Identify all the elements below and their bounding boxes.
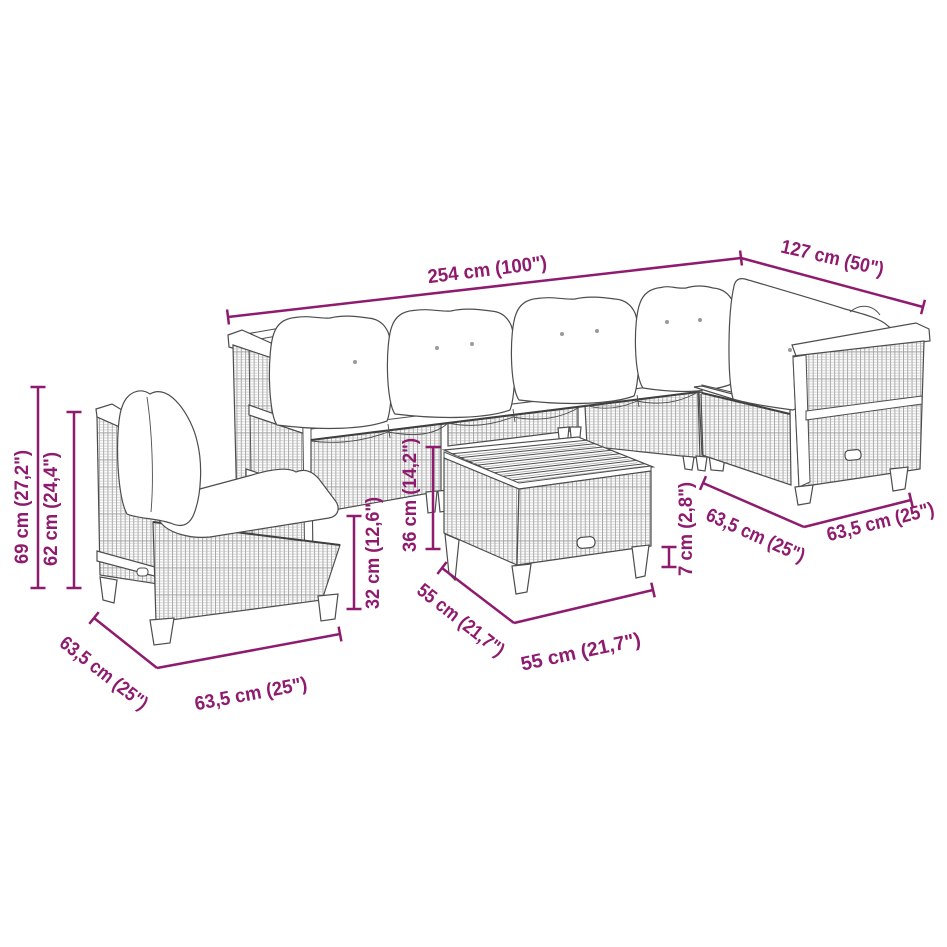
svg-text:69 cm (27,2"): 69 cm (27,2") bbox=[11, 450, 33, 564]
svg-text:7 cm (2,8"): 7 cm (2,8") bbox=[675, 482, 697, 576]
svg-text:32 cm (12,6"): 32 cm (12,6") bbox=[362, 497, 384, 609]
svg-text:36 cm (14,2"): 36 cm (14,2") bbox=[399, 438, 421, 552]
svg-text:62 cm (24,4"): 62 cm (24,4") bbox=[40, 452, 62, 566]
